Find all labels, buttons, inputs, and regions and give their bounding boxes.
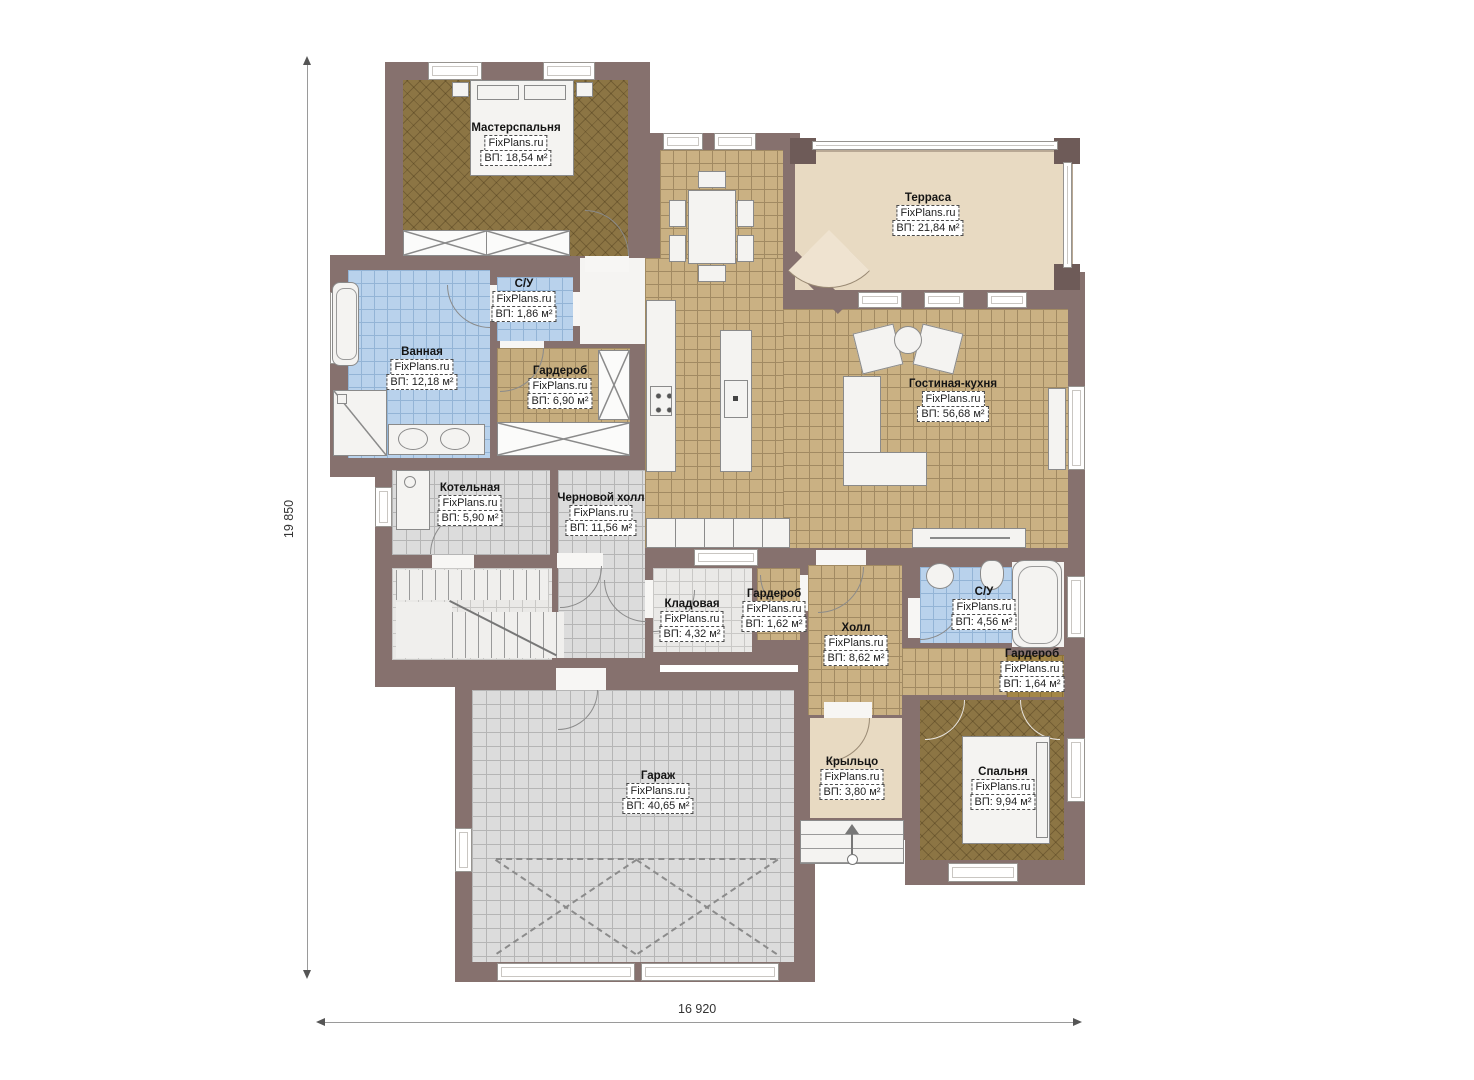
bathtub-inner: [336, 288, 357, 360]
room-name: Гардероб: [999, 648, 1064, 660]
brand-tag: FixPlans.ru: [971, 779, 1034, 795]
door-opening: [556, 668, 606, 690]
brand-tag: FixPlans.ru: [390, 359, 453, 375]
chair: [669, 200, 686, 227]
area-tag: ВП: 8,62 м²: [823, 650, 888, 666]
chair: [669, 235, 686, 262]
dimension-line-vertical: [307, 62, 308, 974]
area-tag: ВП: 6,90 м²: [527, 393, 592, 409]
brand-tag: FixPlans.ru: [626, 783, 689, 799]
room-name: Ванная: [386, 346, 457, 358]
window: [428, 62, 482, 80]
window: [455, 828, 472, 872]
room-label-rough-hall: Черновой холл FixPlans.ru ВП: 11,56 м²: [557, 492, 644, 536]
room-label-bedroom: Спальня FixPlans.ru ВП: 9,94 м²: [970, 766, 1035, 810]
room-name: С/У: [951, 586, 1016, 598]
area-tag: ВП: 56,68 м²: [917, 406, 988, 422]
nightstand: [576, 82, 593, 97]
faucet: [733, 396, 738, 401]
closet: [486, 230, 570, 256]
brand-tag: FixPlans.ru: [921, 391, 984, 407]
room-name: Терраса: [892, 192, 963, 204]
room-name: Черновой холл: [557, 492, 644, 504]
chair: [698, 265, 726, 282]
room-name: Холл: [823, 622, 888, 634]
dimension-height-label: 19 850: [282, 500, 296, 538]
area-tag: ВП: 1,64 м²: [999, 676, 1064, 692]
area-tag: ВП: 12,18 м²: [386, 374, 457, 390]
dimension-arrow-left: [316, 1018, 325, 1026]
room-label-hall: Холл FixPlans.ru ВП: 8,62 м²: [823, 622, 888, 666]
nightstand: [452, 82, 469, 97]
area-tag: ВП: 4,32 м²: [659, 626, 724, 642]
room-name: Спальня: [970, 766, 1035, 778]
stove: [650, 386, 672, 416]
terrace-railing: [1063, 162, 1072, 268]
window: [948, 863, 1018, 882]
window: [858, 292, 902, 308]
door-opening: [573, 292, 580, 326]
window: [543, 62, 595, 80]
room-name: Котельная: [437, 482, 502, 494]
area-tag: ВП: 3,80 м²: [819, 784, 884, 800]
dimension-width-label: 16 920: [678, 1002, 716, 1016]
brand-tag: FixPlans.ru: [438, 495, 501, 511]
brand-tag: FixPlans.ru: [528, 378, 591, 394]
coffee-table: [894, 326, 922, 354]
closet: [403, 230, 487, 256]
stairs-landing: [396, 602, 452, 658]
brand-tag: FixPlans.ru: [742, 601, 805, 617]
chair: [698, 171, 726, 188]
pillow: [524, 85, 566, 100]
entrance-marker: [847, 854, 858, 865]
brand-tag: FixPlans.ru: [492, 291, 555, 307]
pillow: [477, 85, 519, 100]
area-tag: ВП: 1,86 м²: [491, 306, 556, 322]
room-name: Кладовая: [659, 598, 724, 610]
pillow: [1036, 742, 1048, 838]
area-tag: ВП: 11,56 м²: [566, 520, 636, 536]
room-label-wc-top: С/У FixPlans.ru ВП: 1,86 м²: [491, 278, 556, 322]
window: [1068, 386, 1085, 470]
area-tag: ВП: 9,94 м²: [970, 794, 1035, 810]
window: [1067, 738, 1085, 802]
entrance-arrow-line: [851, 832, 853, 854]
door-opening: [645, 580, 653, 618]
door-opening: [500, 341, 544, 348]
floor-garage: [472, 690, 794, 962]
door-opening: [585, 256, 629, 272]
room-label-porch: Крыльцо FixPlans.ru ВП: 3,80 м²: [819, 756, 884, 800]
room-label-wardrobe-small: Гардероб FixPlans.ru ВП: 1,62 м²: [741, 588, 806, 632]
brand-tag: FixPlans.ru: [824, 635, 887, 651]
chair: [737, 235, 754, 262]
dimension-line-horizontal: [322, 1022, 1078, 1023]
brand-tag: FixPlans.ru: [569, 505, 632, 521]
brand-tag: FixPlans.ru: [896, 205, 959, 221]
room-name: Мастерспальня: [471, 122, 560, 134]
room-label-garage: Гараж FixPlans.ru ВП: 40,65 м²: [622, 770, 693, 814]
window: [924, 292, 964, 308]
window: [987, 292, 1027, 308]
window: [694, 549, 758, 566]
area-tag: ВП: 4,56 м²: [951, 614, 1016, 630]
room-name: Гардероб: [741, 588, 806, 600]
area-tag: ВП: 5,90 м²: [437, 510, 502, 526]
door-opening: [432, 555, 474, 568]
dimension-arrow-right: [1073, 1018, 1082, 1026]
sink: [398, 428, 428, 450]
closet: [598, 350, 630, 420]
window: [375, 487, 392, 527]
boiler-icon: [404, 476, 416, 488]
stairs-upper-flight: [396, 570, 548, 600]
terrace-railing: [812, 141, 1058, 150]
door-opening: [824, 702, 872, 718]
room-label-wardrobe-right: Гардероб FixPlans.ru ВП: 1,64 м²: [999, 648, 1064, 692]
room-label-bathroom: Ванная FixPlans.ru ВП: 12,18 м²: [386, 346, 457, 390]
room-label-master-bedroom: Мастерспальня FixPlans.ru ВП: 18,54 м²: [471, 122, 560, 166]
closet: [497, 422, 630, 456]
room-label-wc-right: С/У FixPlans.ru ВП: 4,56 м²: [951, 586, 1016, 630]
brand-tag: FixPlans.ru: [952, 599, 1015, 615]
room-name: Гостиная-кухня: [909, 378, 997, 390]
bathtub-inner: [1018, 566, 1058, 644]
brand-tag: FixPlans.ru: [660, 611, 723, 627]
fireplace: [1048, 388, 1066, 470]
door-opening: [816, 550, 866, 565]
window: [1067, 576, 1085, 638]
area-tag: ВП: 40,65 м²: [622, 798, 693, 814]
window: [714, 133, 756, 150]
chair: [737, 200, 754, 227]
brand-tag: FixPlans.ru: [820, 769, 883, 785]
brand-tag: FixPlans.ru: [1000, 661, 1063, 677]
floor-plan-canvas: Мастерспальня FixPlans.ru ВП: 18,54 м² С…: [0, 0, 1474, 1080]
dimension-arrow-down: [303, 970, 311, 979]
room-name: Гараж: [622, 770, 693, 782]
area-tag: ВП: 18,54 м²: [480, 150, 551, 166]
floor-hall-ext: [902, 648, 1007, 695]
room-name: Крыльцо: [819, 756, 884, 768]
dimension-arrow-up: [303, 56, 311, 65]
room-label-wardrobe-master: Гардероб FixPlans.ru ВП: 6,90 м²: [527, 365, 592, 409]
shower-head: [337, 394, 347, 404]
sink: [926, 563, 954, 589]
garage-door: [641, 963, 779, 981]
room-label-storage: Кладовая FixPlans.ru ВП: 4,32 м²: [659, 598, 724, 642]
tv-cabinet-handle: [930, 537, 1010, 539]
dining-table: [688, 190, 736, 264]
window: [663, 133, 703, 150]
kitchen-cabinets: [646, 518, 790, 548]
room-name: Гардероб: [527, 365, 592, 377]
room-label-boiler: Котельная FixPlans.ru ВП: 5,90 м²: [437, 482, 502, 526]
garage-door: [497, 963, 635, 981]
room-label-terrace: Терраса FixPlans.ru ВП: 21,84 м²: [892, 192, 963, 236]
sofa-chaise: [843, 452, 927, 486]
area-tag: ВП: 21,84 м²: [892, 220, 963, 236]
room-name: С/У: [491, 278, 556, 290]
brand-tag: FixPlans.ru: [484, 135, 547, 151]
area-tag: ВП: 1,62 м²: [741, 616, 806, 632]
sink: [440, 428, 470, 450]
door-opening: [908, 598, 920, 638]
room-label-living-kitchen: Гостиная-кухня FixPlans.ru ВП: 56,68 м²: [909, 378, 997, 422]
